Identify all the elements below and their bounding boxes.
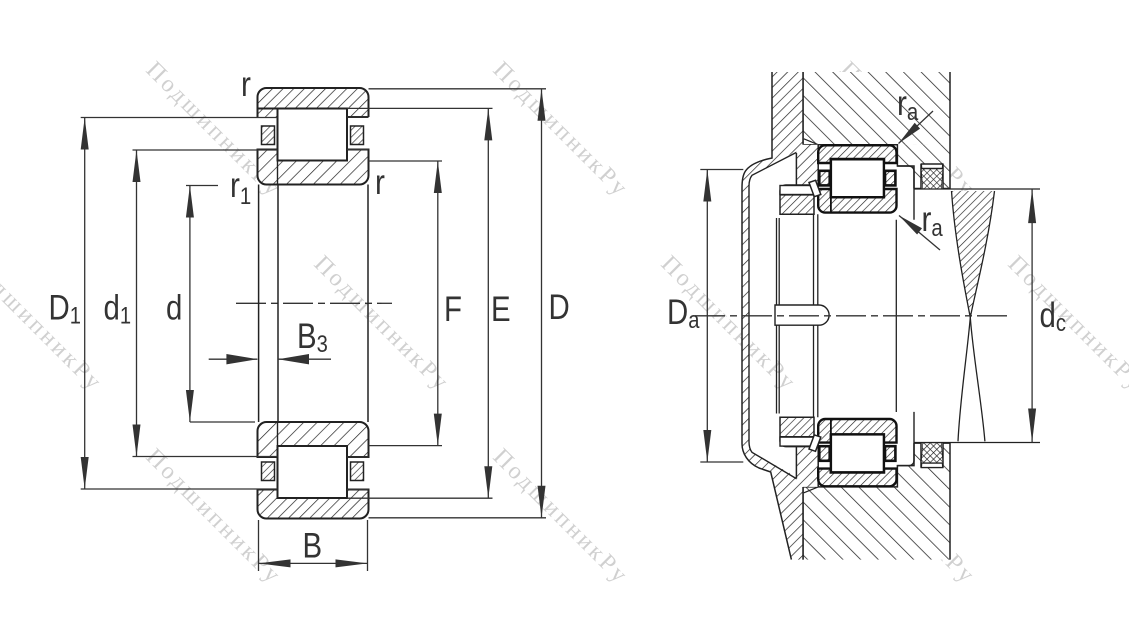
- svg-text:r: r: [241, 65, 251, 104]
- svg-text:B: B: [303, 526, 323, 565]
- svg-text:E: E: [491, 290, 511, 329]
- svg-text:d: d: [166, 288, 182, 327]
- svg-text:D: D: [549, 288, 570, 327]
- svg-text:F: F: [444, 290, 462, 329]
- svg-text:r: r: [375, 163, 385, 202]
